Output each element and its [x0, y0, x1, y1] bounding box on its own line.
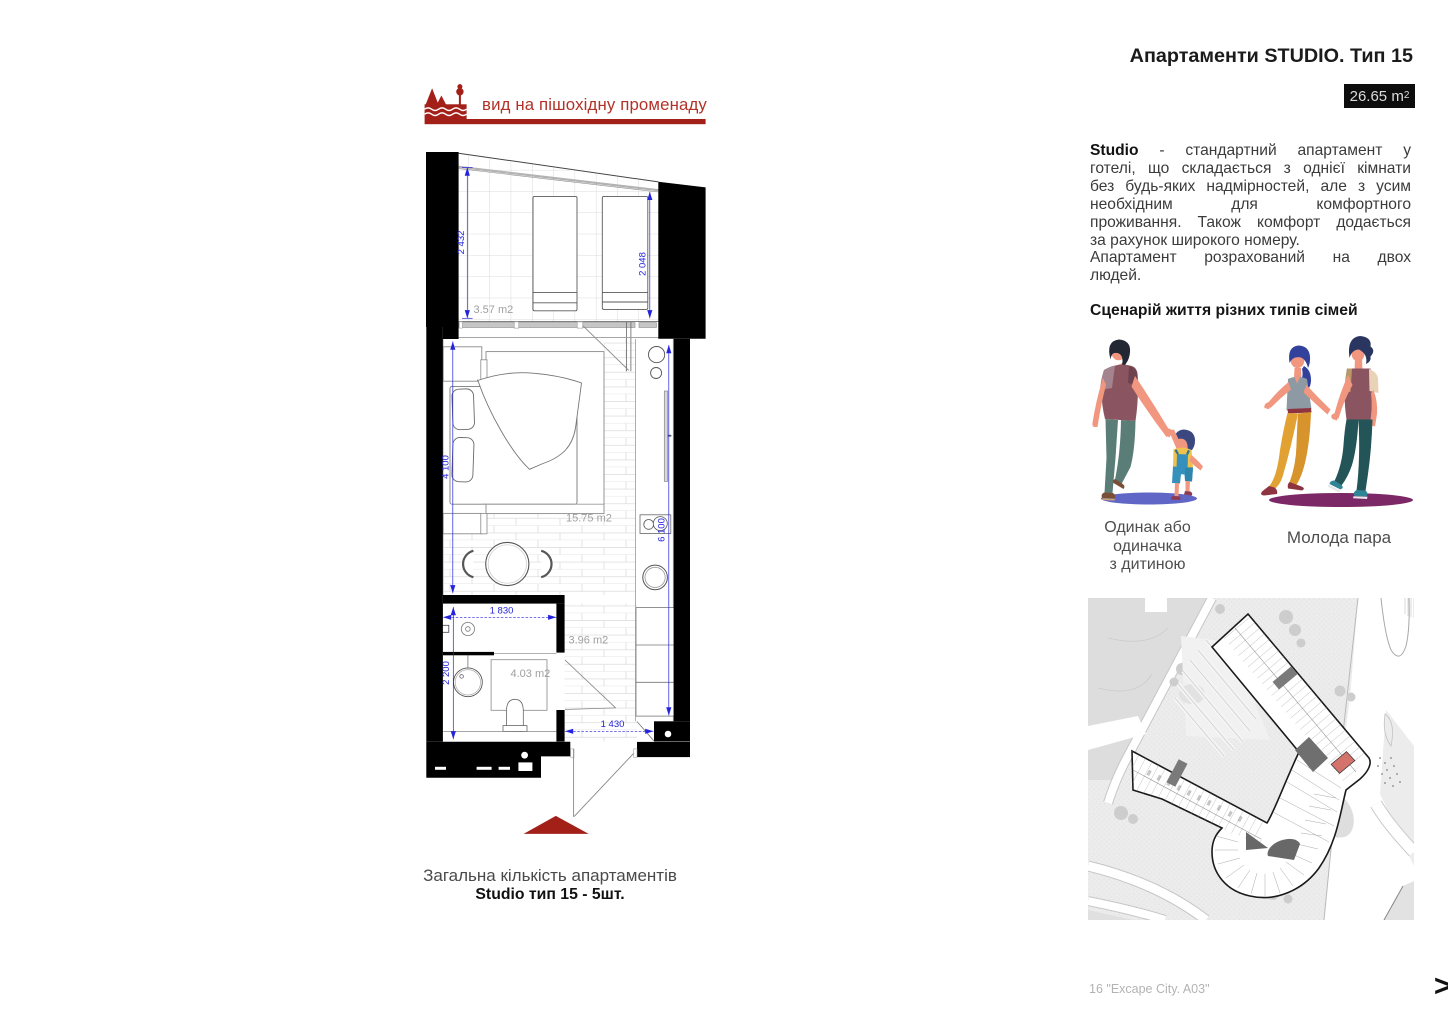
svg-text:1 430: 1 430 — [601, 719, 625, 730]
svg-text:4 100: 4 100 — [441, 455, 452, 479]
svg-text:6 100: 6 100 — [656, 518, 667, 542]
svg-text:4.03 m2: 4.03 m2 — [511, 668, 551, 680]
svg-text:3.57 m2: 3.57 m2 — [474, 304, 514, 316]
svg-text:3.96 m2: 3.96 m2 — [569, 635, 609, 647]
svg-text:2 048: 2 048 — [638, 252, 649, 276]
svg-text:2 432: 2 432 — [456, 231, 467, 255]
svg-text:15.75 m2: 15.75 m2 — [566, 513, 612, 525]
svg-text:2 200: 2 200 — [441, 661, 452, 685]
svg-text:1 830: 1 830 — [490, 606, 514, 617]
